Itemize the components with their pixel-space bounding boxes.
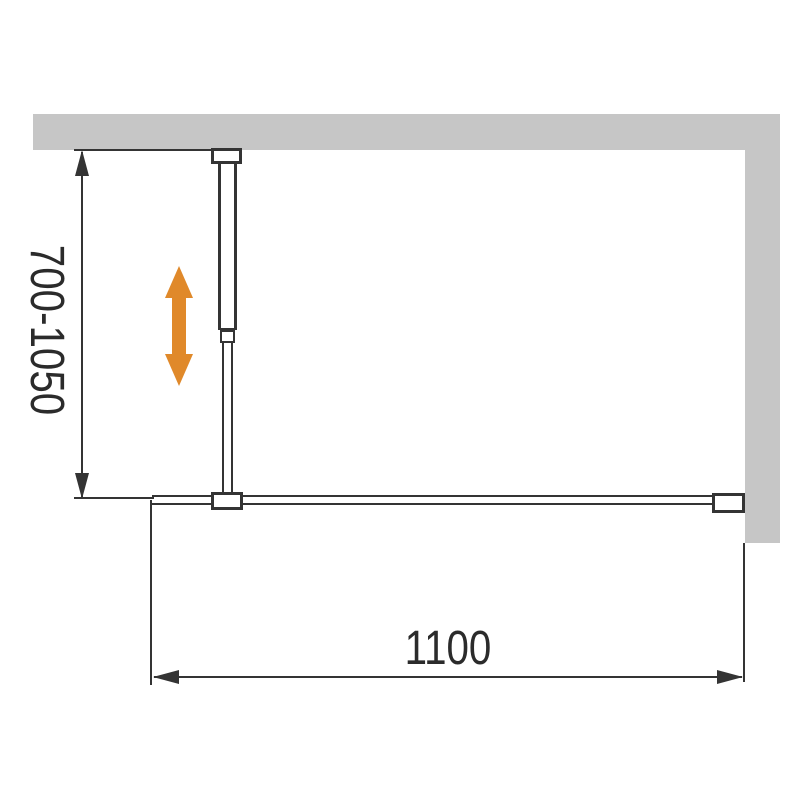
- dimension-diagram: 700-1050 1100: [0, 0, 800, 800]
- vertical-dimension-arrow-up-icon: [75, 150, 89, 176]
- vertical-dimension-label: 700-1050: [21, 212, 71, 447]
- horizontal-dimension-line: [154, 676, 742, 678]
- support-bar-outer-tube: [218, 162, 237, 330]
- horizontal-dimension-arrow-left-icon: [153, 670, 179, 684]
- horizontal-dimension-extension-right: [743, 543, 745, 682]
- horizontal-dimension-extension-left: [150, 500, 152, 685]
- support-bar-inner-tube: [222, 343, 233, 493]
- wall-right: [745, 114, 780, 543]
- horizontal-dimension-label: 1100: [364, 624, 532, 674]
- support-bar-glass-clamp: [211, 492, 243, 510]
- glass-wall-bracket: [712, 493, 745, 513]
- vertical-dimension-arrow-down-icon: [75, 473, 89, 499]
- adjust-arrow-down-head: [165, 354, 193, 386]
- adjust-arrow-up-head: [165, 266, 193, 298]
- support-bar-telescopic-collar: [220, 330, 235, 343]
- support-bar-wall-bracket: [211, 148, 242, 164]
- vertical-dimension-extension-top: [74, 149, 213, 151]
- horizontal-dimension-arrow-right-icon: [717, 670, 743, 684]
- vertical-dimension-line: [81, 152, 83, 498]
- wall-top: [33, 114, 780, 150]
- adjust-arrow-shaft: [172, 296, 186, 356]
